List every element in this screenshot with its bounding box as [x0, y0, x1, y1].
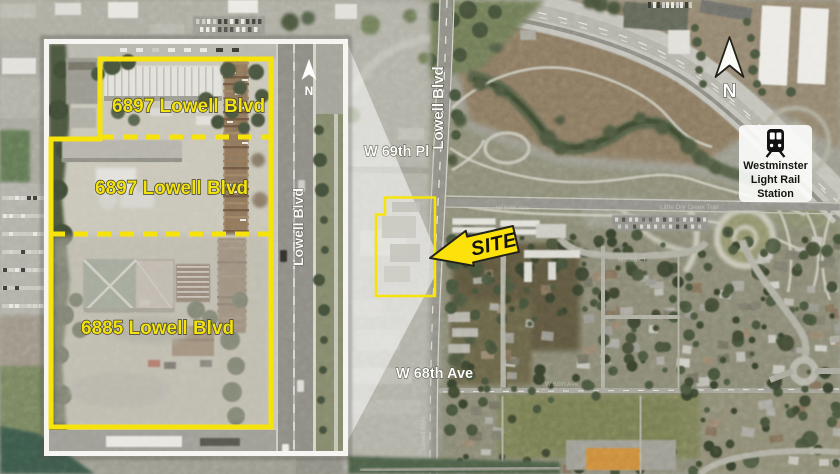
svg-text:Lowell Blvd: Lowell Blvd: [420, 417, 427, 450]
svg-text:Lowell Blvd: Lowell Blvd: [430, 66, 447, 149]
svg-text:Lowell Blvd: Lowell Blvd: [290, 188, 306, 266]
svg-text:W 68th Ave: W 68th Ave: [545, 381, 579, 388]
svg-text:Little Dry Creek Trail: Little Dry Creek Trail: [660, 204, 719, 211]
svg-text:N: N: [305, 84, 314, 98]
svg-text:N: N: [723, 81, 737, 102]
svg-text:Light Rail: Light Rail: [751, 174, 800, 186]
svg-text:Station: Station: [757, 188, 794, 200]
svg-text:6897 Lowell Blvd: 6897 Lowell Blvd: [95, 178, 248, 199]
svg-text:6885 Lowell Blvd: 6885 Lowell Blvd: [81, 318, 234, 339]
svg-text:W 69th Ave: W 69th Ave: [496, 205, 530, 212]
svg-text:W 69th Pl: W 69th Pl: [364, 144, 429, 160]
svg-text:6897 Lowell Blvd: 6897 Lowell Blvd: [112, 96, 265, 117]
svg-text:W 68th Ave: W 68th Ave: [396, 366, 473, 382]
svg-text:Westminster: Westminster: [743, 160, 808, 172]
svg-text:Mosko Ct: Mosko Ct: [618, 257, 646, 264]
